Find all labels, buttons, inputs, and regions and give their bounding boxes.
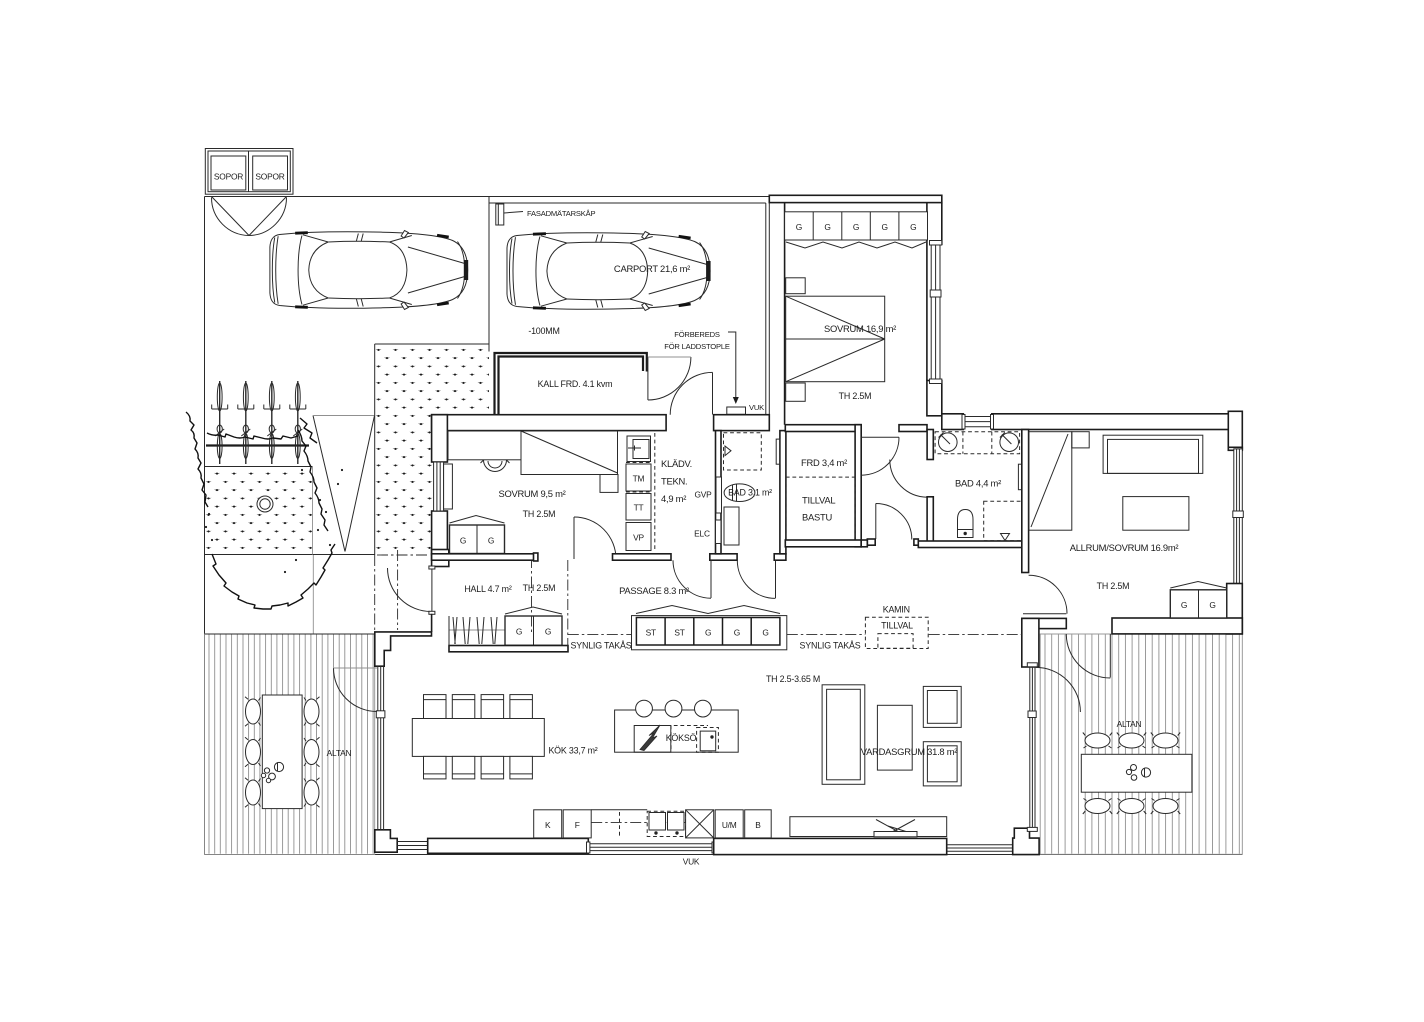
svg-text:BAD 3,1 m²: BAD 3,1 m² <box>728 488 772 498</box>
svg-text:FÖR LADDSTOPLE: FÖR LADDSTOPLE <box>664 342 730 351</box>
svg-text:TEKN.: TEKN. <box>661 476 687 487</box>
svg-text:KÖK 33,7 m²: KÖK 33,7 m² <box>548 746 597 756</box>
svg-text:VUK: VUK <box>683 857 700 867</box>
svg-text:ALTAN: ALTAN <box>327 748 352 758</box>
svg-text:KAMIN: KAMIN <box>883 605 910 615</box>
svg-text:ALTAN: ALTAN <box>1117 719 1142 729</box>
svg-text:TILLVAL: TILLVAL <box>881 621 913 631</box>
svg-text:PASSAGE 8.3 m²: PASSAGE 8.3 m² <box>619 585 689 596</box>
svg-text:FÖRBEREDS: FÖRBEREDS <box>674 330 720 339</box>
svg-text:TM: TM <box>633 474 645 484</box>
svg-text:TH 2.5M: TH 2.5M <box>523 509 556 519</box>
svg-text:KLÄDV.: KLÄDV. <box>661 458 692 469</box>
svg-text:TT: TT <box>634 503 644 513</box>
svg-text:-100MM: -100MM <box>528 326 559 336</box>
svg-text:G: G <box>460 536 466 546</box>
svg-text:SOVRUM 9,5 m²: SOVRUM 9,5 m² <box>498 488 565 499</box>
svg-text:SOVRUM 16,9 m²: SOVRUM 16,9 m² <box>824 323 896 334</box>
svg-text:G: G <box>488 536 494 546</box>
svg-text:G: G <box>516 627 522 637</box>
svg-text:ELC: ELC <box>694 529 710 539</box>
svg-text:ST: ST <box>674 628 684 638</box>
svg-text:GVP: GVP <box>694 490 712 500</box>
svg-text:BAD 4,4 m²: BAD 4,4 m² <box>955 478 1001 489</box>
svg-text:F: F <box>575 820 580 830</box>
svg-text:G: G <box>1209 600 1215 610</box>
svg-text:FASADMÄTARSKÅP: FASADMÄTARSKÅP <box>527 209 596 218</box>
svg-text:G: G <box>853 222 859 232</box>
svg-text:G: G <box>705 628 711 638</box>
svg-text:K: K <box>545 820 551 830</box>
svg-text:SOPOR: SOPOR <box>214 172 243 182</box>
svg-text:HALL 4.7 m²: HALL 4.7 m² <box>464 584 512 594</box>
svg-text:SYNLIG TAKÅS: SYNLIG TAKÅS <box>800 641 861 651</box>
svg-text:TH 2.5M: TH 2.5M <box>839 391 872 401</box>
svg-text:G: G <box>824 222 830 232</box>
svg-text:B: B <box>755 820 761 830</box>
svg-text:VARDASGRUM 31.8 m²: VARDASGRUM 31.8 m² <box>861 746 958 757</box>
svg-text:SOPOR: SOPOR <box>255 172 284 182</box>
svg-text:FRD 3,4 m²: FRD 3,4 m² <box>801 457 847 468</box>
svg-text:TH 2.5-3.65 M: TH 2.5-3.65 M <box>766 674 820 684</box>
svg-text:G: G <box>762 628 768 638</box>
svg-text:ALLRUM/SOVRUM 16.9m²: ALLRUM/SOVRUM 16.9m² <box>1070 542 1179 553</box>
svg-text:TH 2.5M: TH 2.5M <box>1097 581 1130 591</box>
svg-text:U/M: U/M <box>722 820 737 830</box>
svg-text:ST: ST <box>646 628 656 638</box>
svg-text:G: G <box>734 628 740 638</box>
svg-text:G: G <box>882 222 888 232</box>
svg-text:BASTU: BASTU <box>802 512 832 523</box>
svg-text:VP: VP <box>633 533 644 543</box>
svg-text:G: G <box>796 222 802 232</box>
svg-text:KALL FRD. 4.1 kvm: KALL FRD. 4.1 kvm <box>538 379 613 389</box>
svg-text:G: G <box>545 627 551 637</box>
svg-text:VUK: VUK <box>749 403 764 412</box>
svg-text:SYNLIG TAKÅS: SYNLIG TAKÅS <box>571 641 632 651</box>
svg-text:G: G <box>1181 600 1187 610</box>
svg-text:4,9 m²: 4,9 m² <box>661 493 686 504</box>
svg-text:G: G <box>910 222 916 232</box>
svg-text:TH 2.5M: TH 2.5M <box>523 583 556 593</box>
svg-text:TILLVAL: TILLVAL <box>802 495 835 506</box>
svg-text:KÖKSÖ: KÖKSÖ <box>666 733 697 743</box>
svg-text:CARPORT 21,6 m²: CARPORT 21,6 m² <box>614 263 690 274</box>
